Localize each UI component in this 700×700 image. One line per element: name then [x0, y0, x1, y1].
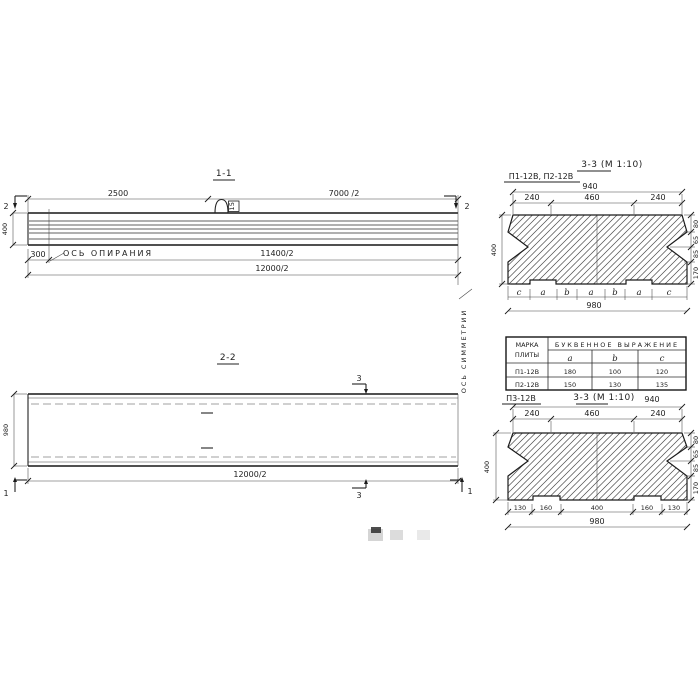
dim-r80-top: 80 — [692, 220, 700, 228]
dim-940-top: 940 — [582, 182, 597, 191]
cross-section-p3 — [508, 433, 687, 500]
dim-7000-2: 7000 /2 — [329, 189, 360, 198]
table-row: П1-12В 180 100 120 — [515, 368, 668, 376]
cut-marker-1-left: 1 — [3, 477, 27, 498]
dim-b130-left: 130 — [514, 504, 526, 512]
cut-marker-3-top: 3 — [352, 374, 368, 394]
bottom-seg-dims: 130 160 400 160 130 — [505, 502, 690, 515]
cut-2-right-label: 2 — [464, 202, 469, 211]
seg-460-top: 460 — [584, 193, 599, 202]
dim-2500: 2500 — [108, 189, 128, 198]
dim-400-bottom-label: 400 — [483, 461, 491, 473]
row2-mark: П2-12В — [515, 381, 539, 389]
section-3-3-p1-p2: 3-3 (М 1:10) П1-12В, П2-12В 940 240 460 … — [490, 160, 700, 314]
table-header-a: a — [567, 354, 572, 364]
seg-240-right-bottom: 240 — [650, 409, 665, 418]
letter-dims: c a b a b a c — [508, 286, 687, 300]
dim-400-bottom-section: 400 — [483, 430, 511, 503]
dim-400-label: 400 — [1, 223, 9, 235]
dim-r170-top: 170 — [692, 267, 700, 279]
row1-mark: П1-12В — [515, 368, 539, 376]
dim-b400: 400 — [591, 504, 603, 512]
cut-3-top-label: 3 — [356, 374, 361, 383]
plate-table: МАРКА ПЛИТЫ БУКВЕННОЕ ВЫРАЖЕНИЕ a b c П1… — [506, 337, 686, 390]
dim-b160-left: 160 — [540, 504, 552, 512]
letter-b1: b — [564, 288, 569, 298]
letter-a3: a — [636, 288, 641, 298]
dim-r65-top: 65 — [692, 236, 700, 244]
letter-b2: b — [612, 288, 617, 298]
table-header-mark-line2: ПЛИТЫ — [515, 351, 540, 359]
cut-marker-2-left: 2 — [3, 196, 27, 211]
cut-1-left-label: 1 — [3, 489, 8, 498]
marks-p1-p2: П1-12В, П2-12В — [509, 172, 573, 181]
dim-r85-bottom: 85 — [692, 464, 700, 472]
dim-height-400: 400 — [1, 210, 27, 248]
loop-tag: 15 — [228, 202, 236, 210]
cut-marker-2-right: 2 — [444, 196, 470, 211]
row2-c: 135 — [656, 381, 668, 389]
cut-1-right-label: 1 — [467, 487, 472, 496]
dim-940-bottom: 940 — [644, 395, 659, 404]
section-2-2-title: 2-2 — [220, 353, 236, 363]
dim-11400: 11400/2 — [260, 249, 293, 258]
dim-b130-right: 130 — [668, 504, 680, 512]
slab-plan — [28, 394, 458, 466]
row2-a: 150 — [564, 381, 576, 389]
dim-12000-top: 12000/2 — [255, 264, 288, 273]
section-3-3-p3: П3-12В 3-3 (М 1:10) 940 240 460 240 — [483, 393, 700, 530]
dim-980-top-section: 980 — [586, 301, 601, 310]
table-header-mark-line1: МАРКА — [515, 341, 539, 349]
row1-b: 100 — [609, 368, 621, 376]
section-1-1: 1-1 2500 7000 /2 2 2 — [1, 169, 470, 285]
table-header-b: b — [612, 354, 617, 364]
letter-a2: a — [588, 288, 593, 298]
dim-980-label: 980 — [2, 424, 10, 436]
dim-r65-bottom: 65 — [692, 450, 700, 458]
section-3-3-bottom-title: 3-3 (М 1:10) — [573, 393, 634, 403]
symmetry-axis-label: ОСЬ СИММЕТРИИ — [460, 309, 468, 394]
dim-400-top-label: 400 — [490, 244, 498, 256]
letter-a1: a — [540, 288, 545, 298]
table-header-c: c — [660, 354, 665, 364]
blueprint-canvas: 1-1 2500 7000 /2 2 2 — [0, 0, 700, 700]
letter-c1: c — [517, 288, 522, 298]
section-3-3-top-title: 3-3 (М 1:10) — [581, 160, 642, 170]
dim-12000-bottom: 12000/2 — [233, 470, 266, 479]
row1-c: 120 — [656, 368, 668, 376]
cut-2-left-label: 2 — [3, 202, 8, 211]
dim-r85-top: 85 — [692, 250, 700, 258]
section-2-2: 2-2 3 980 — [2, 353, 473, 500]
dim-300: 300 — [30, 250, 45, 259]
support-axis-label: ОСЬ ОПИРАНИЯ — [63, 249, 153, 258]
dim-r80-bottom: 80 — [692, 436, 700, 444]
row2-b: 130 — [609, 381, 621, 389]
dim-width-980: 980 — [2, 391, 27, 469]
section-1-1-title: 1-1 — [216, 169, 232, 179]
seg-240-left-top: 240 — [524, 193, 539, 202]
letter-c2: c — [667, 288, 672, 298]
row1-a: 180 — [564, 368, 576, 376]
dim-b160-right: 160 — [641, 504, 653, 512]
dim-r170-bottom: 170 — [692, 482, 700, 494]
lifting-loop-icon: 15 — [215, 200, 239, 214]
cut-3-bottom-label: 3 — [356, 491, 361, 500]
cut-marker-1-right: 1 — [450, 477, 473, 496]
table-row: П2-12В 150 130 135 — [515, 381, 668, 389]
drawing-sheet: { "doc": { "s11": { "title": "1-1", "cut… — [0, 0, 700, 700]
scan-artifacts — [368, 527, 430, 541]
table-header-span: БУКВЕННОЕ ВЫРАЖЕНИЕ — [555, 341, 679, 349]
dim-980-bottom-section: 980 — [589, 517, 604, 526]
cross-section-p1-p2 — [508, 215, 687, 284]
beam-profile — [28, 213, 458, 245]
seg-240-right-top: 240 — [650, 193, 665, 202]
cut-marker-3-bottom: 3 — [352, 479, 368, 500]
mark-p3: П3-12В — [506, 394, 536, 403]
seg-240-left-bottom: 240 — [524, 409, 539, 418]
symmetry-axis: ОСЬ СИММЕТРИИ — [459, 289, 472, 393]
seg-460-bottom: 460 — [584, 409, 599, 418]
